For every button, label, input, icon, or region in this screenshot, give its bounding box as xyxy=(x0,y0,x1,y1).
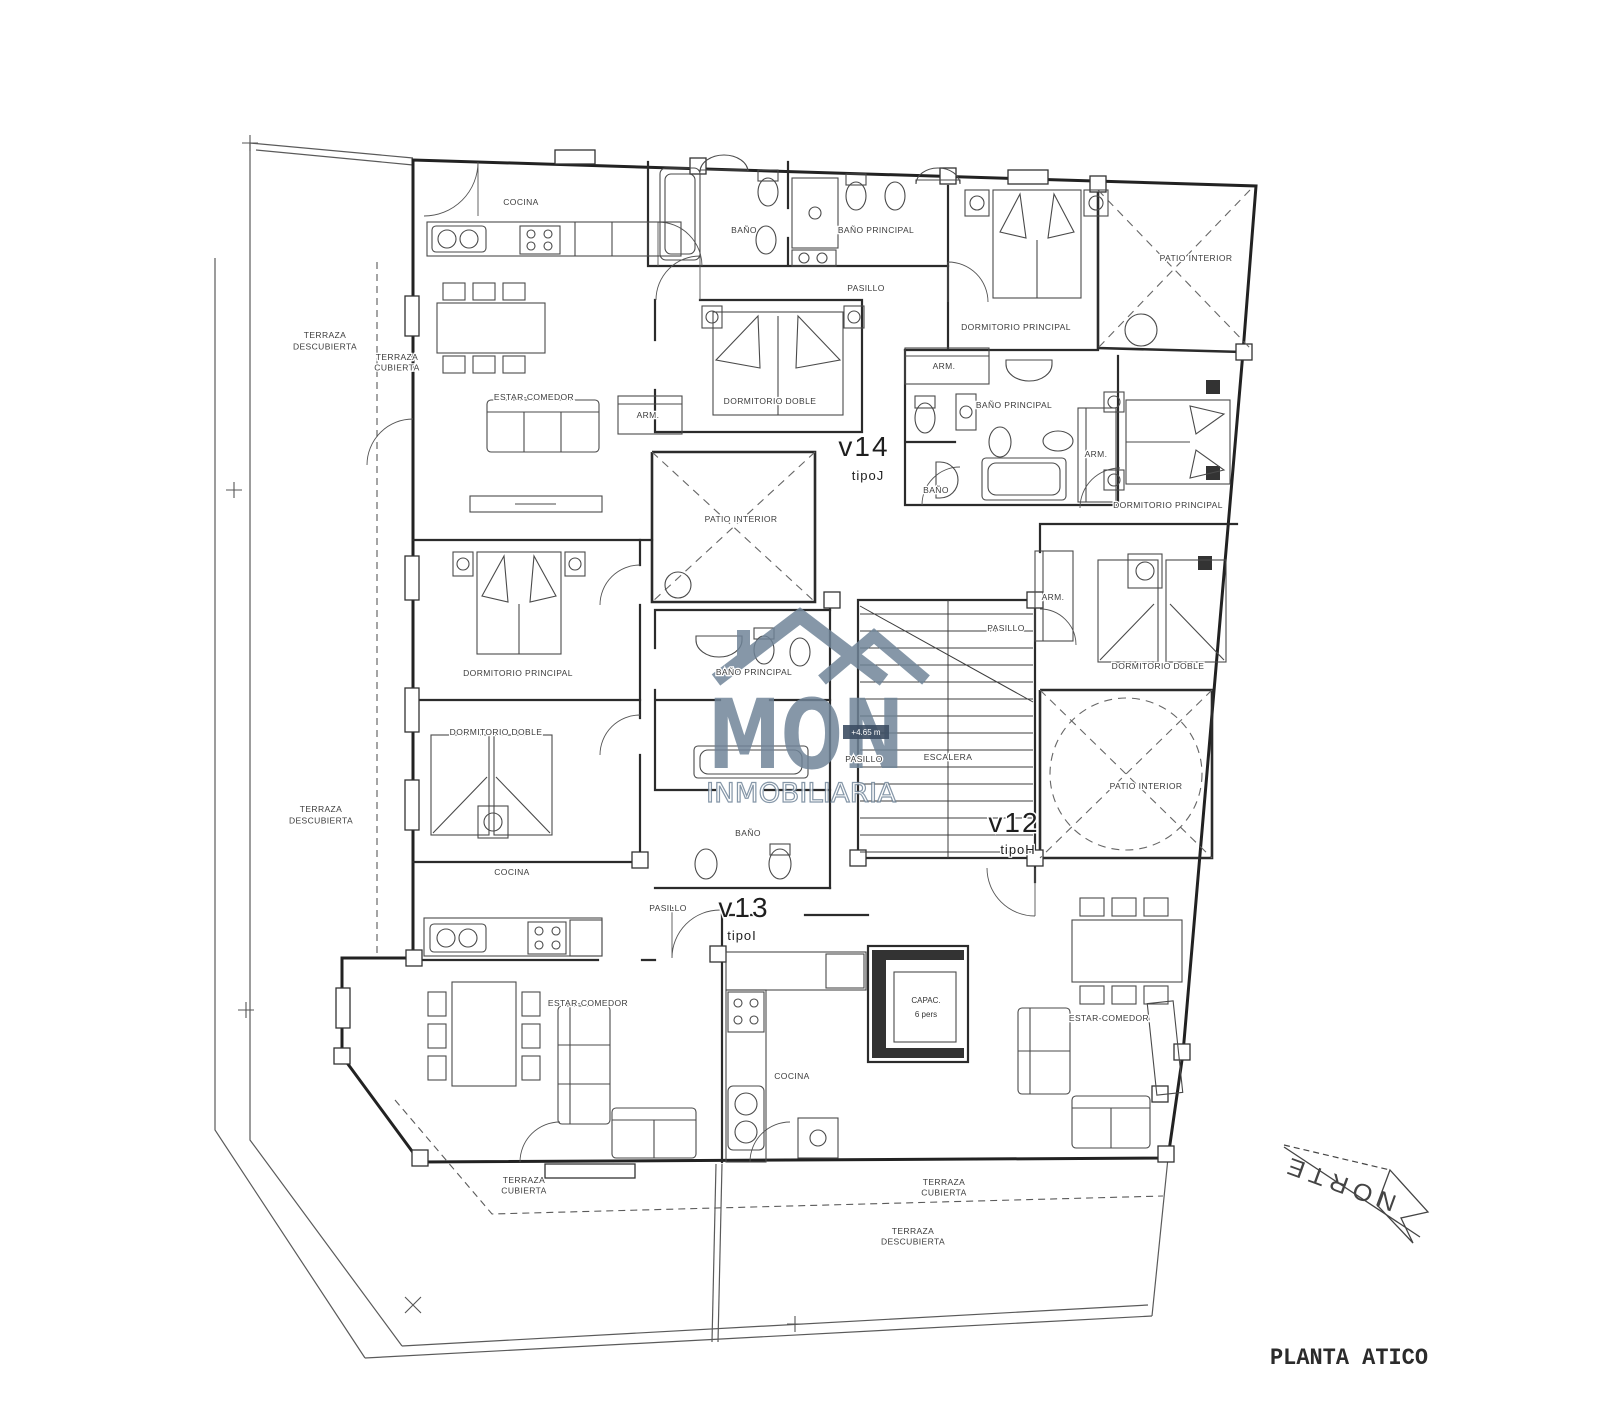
label-dormitorio-principal-v13: DORMITORIO PRINCIPAL xyxy=(463,668,573,678)
label-patio-interior-v14: PATIO INTERIOR xyxy=(705,514,778,524)
label-dormitorio-doble-v14: DORMITORIO DOBLE xyxy=(724,396,817,406)
label-estar-comedor-v12: ESTAR-COMEDOR xyxy=(1069,1013,1149,1023)
unit-v13-tipo: tipoI xyxy=(727,928,757,943)
label-pasillo-core: PASILLO xyxy=(845,754,883,764)
elevator-capacity-line1: CAPAC. xyxy=(911,996,940,1005)
label-bano-v13: BAÑO xyxy=(735,828,761,838)
north-arrow: NORTE xyxy=(1278,1145,1428,1243)
kitchen-v12 xyxy=(726,952,866,1162)
unit-v13: v13 xyxy=(718,892,769,923)
label-pasillo-v14: PASILLO xyxy=(847,283,885,293)
label-terraza-cubierta-bottom-left: TERRAZACUBIERTA xyxy=(501,1175,546,1196)
plan-title: PLANTA ATICO xyxy=(1270,1345,1428,1371)
label-escalera: ESCALERA xyxy=(924,752,973,762)
label-cocina-v13: COCINA xyxy=(494,867,529,877)
label-bano-principal-v13: BAÑO PRINCIPAL xyxy=(716,667,792,677)
label-arm-v14: ARM. xyxy=(637,410,660,420)
patio-interior-right xyxy=(1040,690,1212,858)
label-dormitorio-doble-v12: DORMITORIO DOBLE xyxy=(1112,661,1205,671)
label-dormitorio-principal-tr: DORMITORIO PRINCIPAL xyxy=(961,322,1071,332)
label-bano-v14: BAÑO xyxy=(731,225,757,235)
kitchen-v14 xyxy=(427,222,681,256)
unit-v12: v12 xyxy=(988,807,1039,838)
label-terraza-descubierta-bottom: TERRAZADESCUBIERTA xyxy=(881,1226,945,1247)
patio-interior-topright xyxy=(1098,190,1250,348)
unit-v14-tipo: tipoJ xyxy=(852,468,884,483)
label-terraza-cubierta-bottom-right: TERRAZACUBIERTA xyxy=(921,1177,966,1198)
label-cocina-v12: COCINA xyxy=(774,1071,809,1081)
label-arm-v12-mid: ARM. xyxy=(1042,592,1065,602)
beds-doble-v13 xyxy=(431,735,552,838)
elevator-capacity-line2: 6 pers xyxy=(915,1010,937,1019)
label-arm-v12-upper: ARM. xyxy=(1085,449,1108,459)
label-pasillo-v13: PASILLO xyxy=(649,903,687,913)
floorplan-page: CAPAC. 6 pers xyxy=(0,0,1600,1414)
floorplan-drawing: CAPAC. 6 pers xyxy=(0,0,1600,1414)
bath-v13 xyxy=(695,844,791,879)
label-cocina-v14: COCINA xyxy=(503,197,538,207)
elevator: CAPAC. 6 pers xyxy=(868,946,968,1062)
bed-principal-v13 xyxy=(453,552,585,654)
label-dormitorio-principal-v12: DORMITORIO PRINCIPAL xyxy=(1113,500,1223,510)
bed-principal-topright xyxy=(965,190,1108,298)
estar-v13 xyxy=(428,982,696,1158)
label-estar-comedor-v13: ESTAR-COMEDOR xyxy=(548,998,628,1008)
estar-v12 xyxy=(1018,898,1183,1148)
label-bano-v12: BAÑO xyxy=(923,485,949,495)
watermark-mon-inmobiliaria: MON INMOBILIARIA xyxy=(706,616,926,809)
label-dormitorio-doble-v13: DORMITORIO DOBLE xyxy=(450,727,543,737)
label-terraza-cubierta-left: TERRAZACUBIERTA xyxy=(374,352,419,373)
watermark-subtitle: INMOBILIARIA xyxy=(706,778,897,809)
label-pasillo-v12: PASILLO xyxy=(987,623,1025,633)
kitchen-v13 xyxy=(424,918,602,956)
beds-doble-v12 xyxy=(1098,554,1226,662)
label-patio-interior-v12: PATIO INTERIOR xyxy=(1110,781,1183,791)
label-bano-principal-v12: BAÑO PRINCIPAL xyxy=(976,400,1052,410)
level-badge: +4.65 m xyxy=(843,725,889,739)
label-bano-principal-v14: BAÑO PRINCIPAL xyxy=(838,225,914,235)
bath-principal-v12-upper xyxy=(915,360,1073,500)
label-terraza-descubierta-lower: TERRAZADESCUBIERTA xyxy=(289,804,353,826)
label-terraza-descubierta-upper: TERRAZADESCUBIERTA xyxy=(293,330,357,352)
unit-v14: v14 xyxy=(838,431,889,462)
unit-v12-tipo: tipoH xyxy=(1000,842,1035,857)
property-boundary xyxy=(215,135,1168,1358)
label-patio-interior-tr: PATIO INTERIOR xyxy=(1160,253,1233,263)
north-label: NORTE xyxy=(1278,1150,1400,1216)
label-estar-comedor-v14: ESTAR-COMEDOR xyxy=(494,392,574,402)
patio-interior-center xyxy=(652,452,815,602)
label-arm-tr: ARM. xyxy=(933,361,956,371)
level-badge-text: +4.65 m xyxy=(851,728,880,737)
